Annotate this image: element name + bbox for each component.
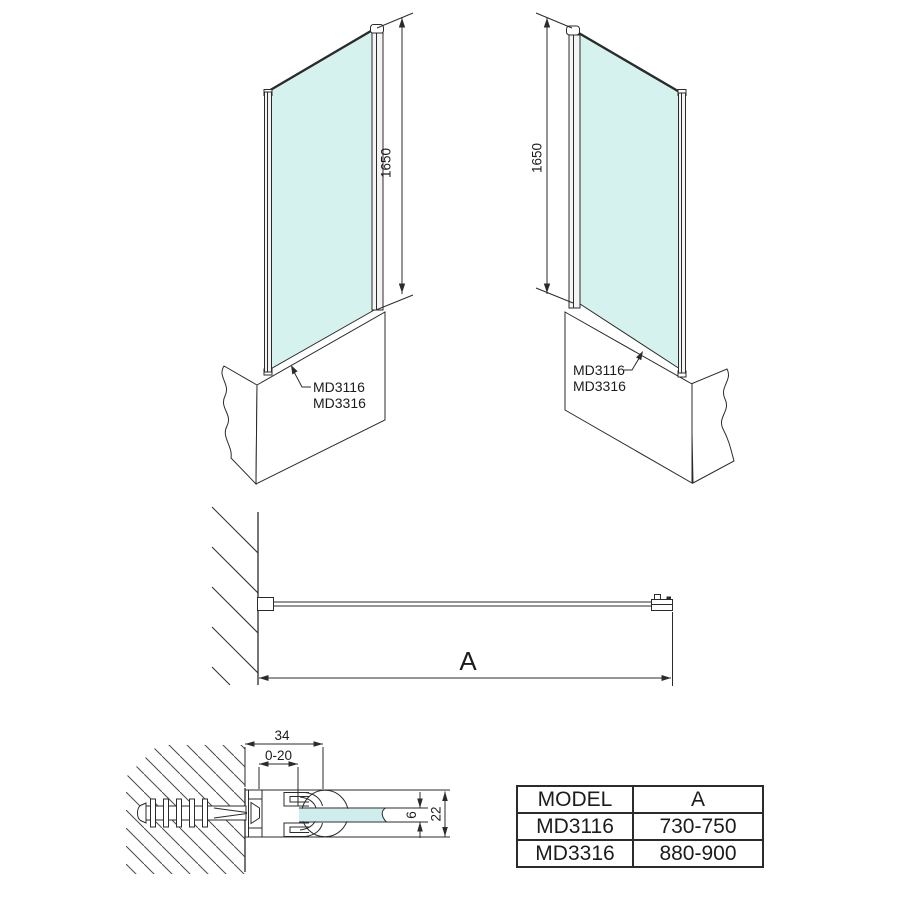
hinge-profile-left [264,90,272,376]
model-label-1: MD3116 [313,379,365,395]
dim-width-A-value: A [459,646,477,676]
dimension-height-right: 1650 [530,13,574,303]
front-view-right: 1650 MD3116 MD3316 [530,13,735,483]
table-header-model: MODEL [517,786,633,813]
glass-fill [299,809,387,821]
table-cell-range: 730-750 [633,813,763,840]
table-cell-model: MD3116 [517,813,633,840]
front-view-left: 1650 MD3116 MD3316 [222,13,413,484]
table-header-row: MODEL A [517,786,763,813]
technical-drawing-sheet: 1650 MD3116 MD3316 [0,0,900,900]
wall-profile-right-view [567,26,581,308]
dimension-6: 6 [404,792,423,838]
dim-0-20-value: 0-20 [265,748,292,763]
end-cap-plan [652,595,673,611]
dim-height-left-value: 1650 [379,148,394,178]
table-header-a: A [633,786,763,813]
wall-hatch [212,507,258,685]
bathtub-end-face [691,369,734,483]
table-cell-model: MD3316 [517,840,633,867]
dimension-0-20: 0-20 [259,748,298,806]
dim-6-value: 6 [404,811,419,819]
dim-height-right-value: 1650 [530,143,545,173]
model-label-1: MD3116 [573,362,625,378]
bathtub-end-face [222,366,257,484]
model-size-table: MODEL A MD3116 730-750 MD3316 880-900 [516,785,764,868]
table-cell-range: 880-900 [633,840,763,867]
model-label-2: MD3316 [573,378,626,394]
table-row: MD3116 730-750 [517,813,763,840]
dim-34-value: 34 [274,728,290,743]
dim-22-value: 22 [429,806,444,821]
plan-view: A [212,507,673,686]
glass-panel-right [577,32,683,371]
dimension-width-A: A [259,612,673,686]
model-label-2: MD3316 [313,395,366,411]
glass-panel-left [267,28,376,371]
table-row: MD3316 880-900 [517,840,763,867]
glass-plan [274,602,653,606]
dimension-22: 22 [429,792,448,837]
hinge-profile-right [678,90,686,378]
drawing-canvas: 1650 MD3116 MD3316 [0,0,900,900]
screw-head [251,803,260,824]
wall-bracket-plan [258,598,274,611]
detail-section: 34 0-20 6 22 [126,728,450,874]
